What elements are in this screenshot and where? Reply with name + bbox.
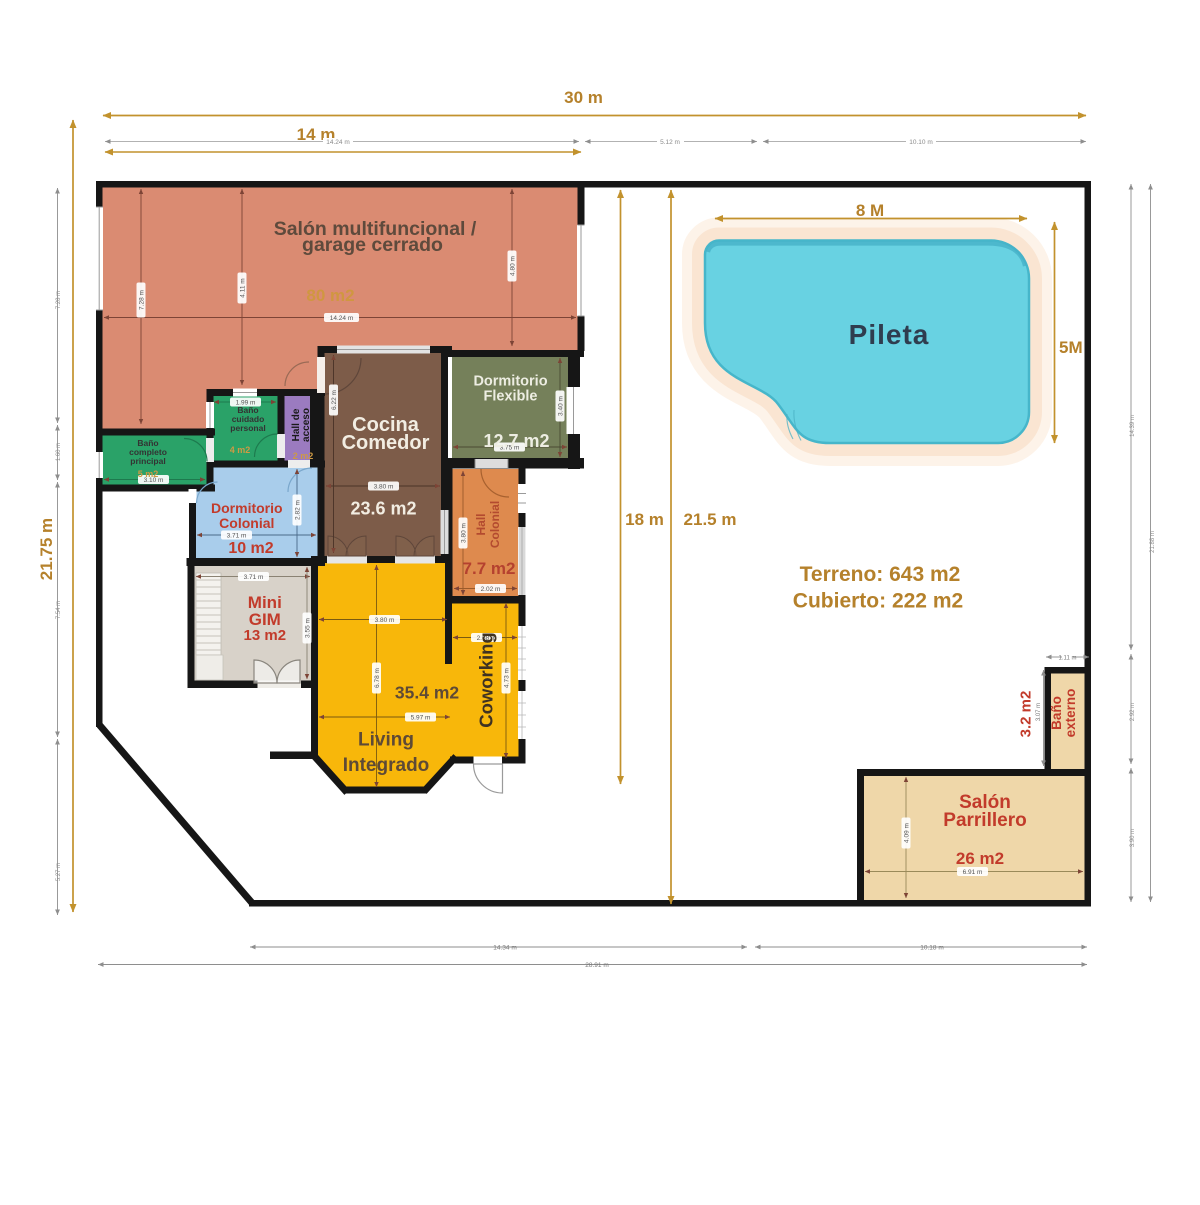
svg-text:7.7 m2: 7.7 m2 xyxy=(463,559,516,578)
svg-text:Dormitorio: Dormitorio xyxy=(211,500,283,516)
svg-text:21.75 m: 21.75 m xyxy=(37,518,56,580)
svg-text:23.6 m2: 23.6 m2 xyxy=(350,499,416,519)
svg-text:Colonial: Colonial xyxy=(219,515,274,531)
svg-text:21.88 m: 21.88 m xyxy=(1150,531,1156,553)
svg-text:4.11 m: 4.11 m xyxy=(239,278,246,297)
svg-text:6.78 m: 6.78 m xyxy=(374,668,381,688)
svg-text:Dormitorio: Dormitorio xyxy=(473,374,547,390)
svg-text:Living: Living xyxy=(358,730,414,751)
svg-text:5M: 5M xyxy=(1059,338,1083,357)
svg-text:Integrado: Integrado xyxy=(343,755,430,776)
svg-text:80 m2: 80 m2 xyxy=(306,286,354,305)
svg-text:2.82 m: 2.82 m xyxy=(294,500,301,520)
svg-text:Coworking: Coworking xyxy=(476,632,497,728)
svg-text:3.71 m: 3.71 m xyxy=(227,532,247,539)
svg-text:3.90 m: 3.90 m xyxy=(1130,829,1136,847)
svg-text:5.97 m: 5.97 m xyxy=(411,714,431,721)
svg-text:5.27 m: 5.27 m xyxy=(56,863,62,881)
svg-text:personal: personal xyxy=(230,423,265,433)
svg-text:35.4 m2: 35.4 m2 xyxy=(395,683,459,703)
svg-text:8 M: 8 M xyxy=(856,201,884,220)
svg-text:6.91 m: 6.91 m xyxy=(963,869,983,876)
svg-text:Cubierto: 222 m2: Cubierto: 222 m2 xyxy=(793,590,963,613)
svg-text:Terreno: 643 m2: Terreno: 643 m2 xyxy=(800,563,961,586)
svg-text:Pileta: Pileta xyxy=(849,319,930,350)
svg-text:18 m: 18 m xyxy=(625,510,664,529)
svg-text:6.22 m: 6.22 m xyxy=(331,390,338,410)
svg-text:28.91 m: 28.91 m xyxy=(585,962,609,969)
svg-text:Flexible: Flexible xyxy=(484,389,538,405)
svg-text:14.34 m: 14.34 m xyxy=(493,945,517,952)
svg-text:10.10 m: 10.10 m xyxy=(909,139,933,146)
svg-text:10.18 m: 10.18 m xyxy=(920,945,944,952)
svg-text:4.09 m: 4.09 m xyxy=(903,823,910,843)
svg-text:3.80 m: 3.80 m xyxy=(375,617,395,624)
svg-text:21.5 m: 21.5 m xyxy=(684,510,737,529)
svg-text:1.11 m: 1.11 m xyxy=(1059,656,1077,662)
svg-text:3.40 m: 3.40 m xyxy=(557,396,564,416)
svg-text:26 m2: 26 m2 xyxy=(956,849,1004,868)
svg-text:3.2 m2: 3.2 m2 xyxy=(1018,691,1035,738)
svg-text:14.24 m: 14.24 m xyxy=(330,315,354,322)
svg-text:Hall: Hall xyxy=(474,513,488,535)
svg-text:3.55 m: 3.55 m xyxy=(304,618,311,638)
svg-text:7.28 m: 7.28 m xyxy=(138,290,145,310)
svg-text:garage cerrado: garage cerrado xyxy=(302,234,443,256)
svg-text:4.80 m: 4.80 m xyxy=(509,256,516,276)
svg-text:5 m2: 5 m2 xyxy=(138,469,159,479)
svg-text:Parrillero: Parrillero xyxy=(943,810,1026,831)
svg-text:4.73 m: 4.73 m xyxy=(503,668,510,688)
svg-text:10 m2: 10 m2 xyxy=(228,540,273,557)
svg-text:30 m: 30 m xyxy=(564,88,603,107)
svg-text:14.24 m: 14.24 m xyxy=(326,139,350,146)
svg-text:3.71 m: 3.71 m xyxy=(244,574,264,581)
svg-text:14.39 m: 14.39 m xyxy=(1130,415,1136,437)
svg-text:Baño: Baño xyxy=(1049,696,1064,730)
svg-text:Colonial: Colonial xyxy=(488,501,502,548)
svg-text:12.7 m2: 12.7 m2 xyxy=(483,431,549,451)
svg-text:5.12 m: 5.12 m xyxy=(660,139,680,146)
svg-text:Comedor: Comedor xyxy=(342,432,430,454)
svg-text:2 m2: 2 m2 xyxy=(293,451,314,461)
svg-text:3.80 m: 3.80 m xyxy=(374,483,394,490)
svg-text:2.02 m: 2.02 m xyxy=(481,586,501,593)
svg-text:1.60 m: 1.60 m xyxy=(56,443,62,461)
svg-text:4 m2: 4 m2 xyxy=(230,445,251,455)
svg-text:principal: principal xyxy=(130,456,165,466)
svg-text:7.54 m: 7.54 m xyxy=(56,601,62,619)
svg-text:2.92 m: 2.92 m xyxy=(1130,703,1136,721)
svg-text:3.80 m: 3.80 m xyxy=(460,523,467,543)
svg-text:externo: externo xyxy=(1063,689,1078,738)
svg-text:13 m2: 13 m2 xyxy=(244,627,287,644)
svg-text:3.07 m: 3.07 m xyxy=(1036,703,1042,721)
svg-text:7.28 m: 7.28 m xyxy=(56,291,62,309)
svg-text:acceso: acceso xyxy=(301,408,312,442)
